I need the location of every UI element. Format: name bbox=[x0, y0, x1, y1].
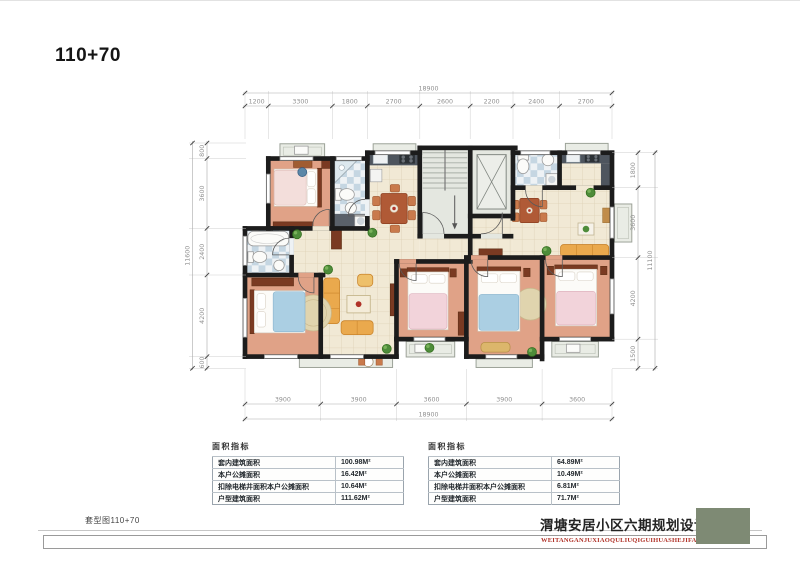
table-row: 本户公摊面积16.42M² bbox=[213, 469, 404, 481]
dim-label-top-total: 18900 bbox=[418, 86, 438, 93]
row-label: 套内建筑面积 bbox=[213, 457, 336, 469]
foyer-left bbox=[420, 236, 468, 261]
table-row: 套内建筑面积64.89M² bbox=[429, 457, 620, 469]
area-table-70: 面积指标 套内建筑面积64.89M² 本户公摊面积10.49M² 扣除电梯井面积… bbox=[428, 441, 620, 505]
row-value: 16.42M² bbox=[336, 469, 404, 481]
dim-label: 800 bbox=[199, 145, 206, 157]
dim-label: 3600 bbox=[423, 397, 439, 404]
row-value: 71.7M² bbox=[552, 493, 620, 505]
dim-label: 2600 bbox=[437, 99, 453, 106]
dim-label: 2400 bbox=[528, 99, 544, 106]
dim-label: 2700 bbox=[578, 99, 594, 106]
table-row: 户型建筑面积111.62M² bbox=[213, 493, 404, 505]
area-table-title: 面积指标 bbox=[212, 441, 404, 452]
row-value: 64.89M² bbox=[552, 457, 620, 469]
dim-label-right-total: 11100 bbox=[647, 250, 654, 270]
table-row: 扣除电梯井面积本户公摊面积10.64M² bbox=[213, 481, 404, 493]
sheet-label: 套型图110+70 bbox=[85, 515, 140, 526]
row-label: 扣除电梯井面积本户公摊面积 bbox=[213, 481, 336, 493]
dim-label: 3600 bbox=[199, 185, 206, 201]
area-table-title: 面积指标 bbox=[428, 441, 620, 452]
dim-label: 3900 bbox=[496, 397, 512, 404]
dim-label: 600 bbox=[199, 356, 206, 368]
dim-label: 1200 bbox=[249, 99, 265, 106]
dim-label: 1500 bbox=[630, 346, 637, 362]
row-value: 10.49M² bbox=[552, 469, 620, 481]
dim-label: 3900 bbox=[275, 397, 291, 404]
dim-label: 3300 bbox=[292, 99, 308, 106]
table-row: 户型建筑面积71.7M² bbox=[429, 493, 620, 505]
dim-label: 4200 bbox=[630, 290, 637, 306]
row-value: 111.62M² bbox=[336, 493, 404, 505]
elevator bbox=[477, 155, 506, 209]
dim-label: 3600 bbox=[569, 397, 585, 404]
dim-label: 2200 bbox=[484, 99, 500, 106]
dim-label: 3600 bbox=[630, 215, 637, 231]
table-row: 套内建筑面积100.98M² bbox=[213, 457, 404, 469]
page-title: 110+70 bbox=[55, 45, 121, 67]
row-label: 扣除电梯井面积本户公摊面积 bbox=[429, 481, 552, 493]
table-row: 本户公摊面积10.49M² bbox=[429, 469, 620, 481]
row-label: 本户公摊面积 bbox=[429, 469, 552, 481]
row-value: 100.98M² bbox=[336, 457, 404, 469]
dim-label: 2700 bbox=[386, 99, 402, 106]
dim-label: 1800 bbox=[342, 99, 358, 106]
table-row: 扣除电梯井面积本户公摊面积6.81M² bbox=[429, 481, 620, 493]
row-value: 6.81M² bbox=[552, 481, 620, 493]
drawing-sheet: 110+70 bbox=[0, 0, 800, 566]
row-label: 户型建筑面积 bbox=[213, 493, 336, 505]
dim-label: 1800 bbox=[630, 162, 637, 178]
row-value: 10.64M² bbox=[336, 481, 404, 493]
floor-plan-drawing: 18900 1200 3300 1800 2700 2600 2200 2400… bbox=[170, 76, 665, 426]
dim-label: 3900 bbox=[351, 397, 367, 404]
dim-label: 4200 bbox=[199, 308, 206, 324]
row-label: 户型建筑面积 bbox=[429, 493, 552, 505]
dim-label-left-total: 11600 bbox=[185, 246, 192, 266]
row-label: 套内建筑面积 bbox=[429, 457, 552, 469]
row-label: 本户公摊面积 bbox=[213, 469, 336, 481]
area-table-110: 面积指标 套内建筑面积100.98M² 本户公摊面积16.42M² 扣除电梯井面… bbox=[212, 441, 404, 505]
dim-label: 2400 bbox=[199, 244, 206, 260]
green-stamp bbox=[696, 508, 750, 544]
floor-plan bbox=[243, 143, 632, 367]
project-subtitle: WEITANGANJUXIAOQULIUQIGUIHUASHEJIFANG'AN bbox=[541, 537, 719, 544]
dim-label-bottom-total: 18900 bbox=[418, 412, 438, 419]
